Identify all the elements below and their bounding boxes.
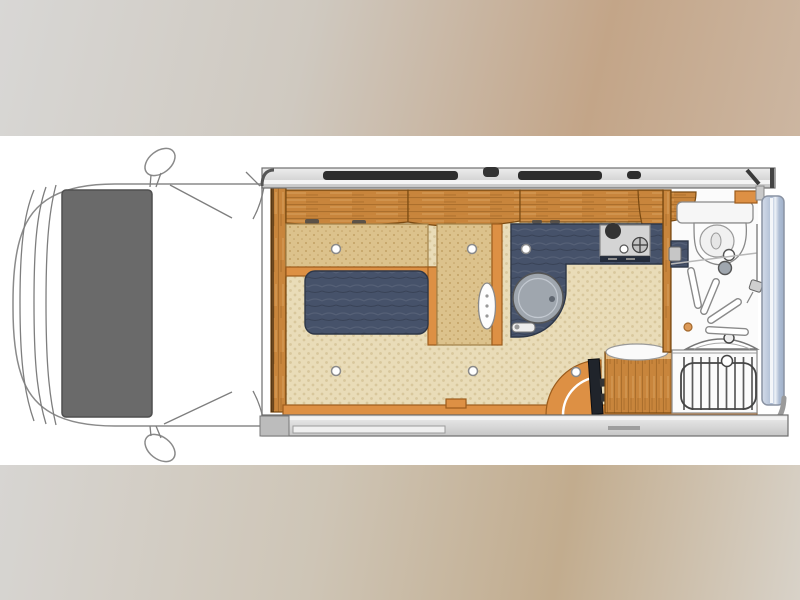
overhead-locker-bow [408, 190, 520, 226]
wing-mirror-bottom [140, 426, 180, 467]
floorplan-svg [0, 0, 800, 600]
rear-top-trim [735, 191, 757, 203]
lounge-table [305, 271, 428, 334]
faucet-base [515, 325, 520, 330]
top-bar-end-mark [770, 168, 774, 188]
toilet-cistern [677, 202, 753, 223]
window-slit-3 [627, 171, 641, 179]
kitchen-sink [513, 273, 563, 323]
flush-button [724, 250, 735, 261]
window-slit-1 [323, 171, 458, 180]
entry-step-sill [260, 416, 289, 436]
shower-mixer [719, 262, 732, 275]
bathroom-wall [663, 190, 671, 352]
bathroom-cabinet-knob [669, 247, 681, 261]
top-wall-highlight [263, 180, 774, 184]
side-cabinet-trim [492, 224, 502, 345]
sill-dash [608, 426, 640, 430]
drain-dot [684, 323, 692, 331]
sliding-door-track [293, 426, 445, 433]
overhead-locker-left [286, 190, 408, 225]
wing-mirror-top [140, 143, 180, 187]
sink-drain [549, 296, 555, 302]
roof-vent-tab [483, 167, 499, 177]
overcab-panel [62, 190, 152, 417]
screenshot-stage [0, 0, 800, 600]
entry-step [606, 344, 668, 360]
heater-grate-unit [672, 350, 757, 413]
bottom-wall-highlight [263, 417, 787, 420]
window-slit-2 [518, 171, 602, 180]
seat-ledge-side [428, 267, 437, 345]
stove-knob [620, 245, 628, 253]
floor-edge-tab [446, 399, 466, 408]
cab-partition-shadow [271, 188, 274, 412]
cab [13, 143, 264, 467]
wardrobe [605, 352, 672, 413]
cabinet-door-handle [479, 283, 496, 329]
stove-drawer-front [600, 256, 650, 262]
rear-door-highlight [770, 198, 773, 403]
grate-knob [722, 356, 733, 367]
stove-burner-left [605, 223, 621, 239]
hob-stove [600, 223, 650, 262]
bench-seat [286, 224, 428, 268]
